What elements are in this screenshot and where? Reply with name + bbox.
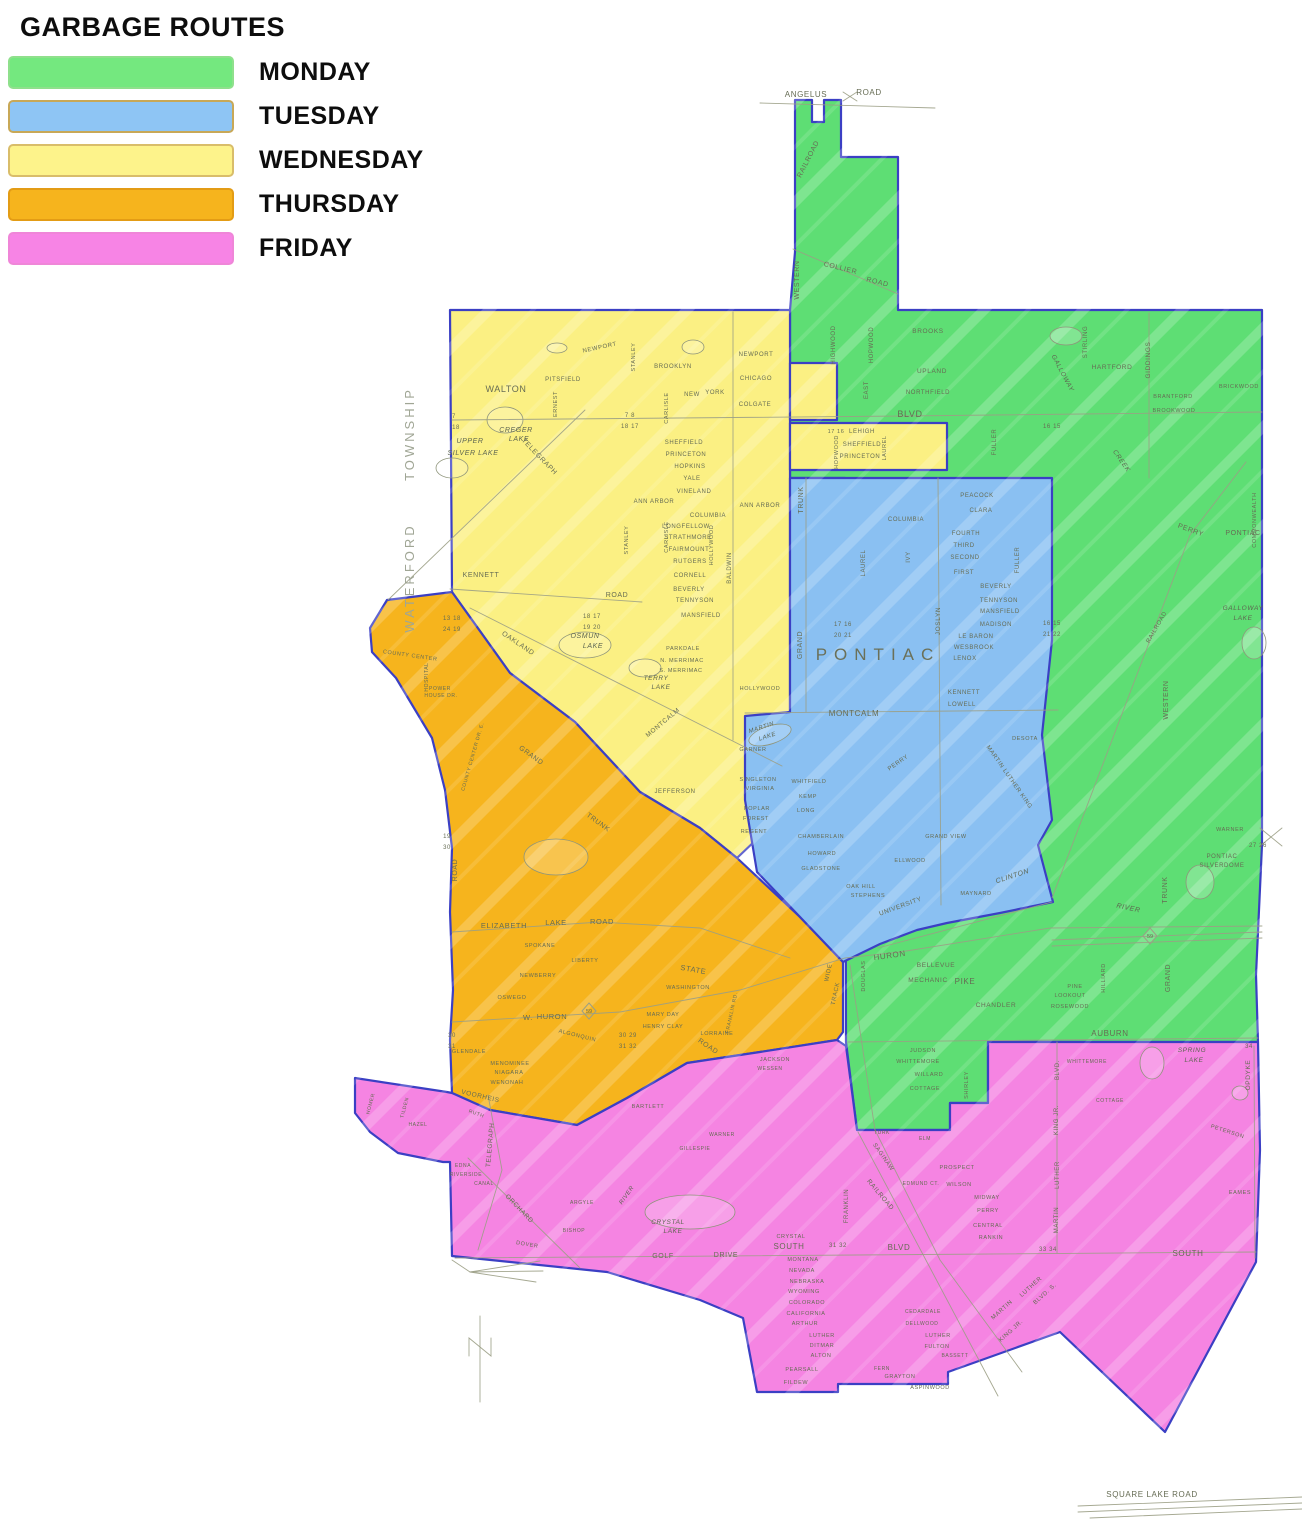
street-label: STIRLING [1083,326,1089,358]
street-label: PITSFIELD [545,377,581,383]
street-label: POPLAR [744,806,770,812]
highway-shield-number: 59 [586,1009,592,1015]
legend-swatch-friday [8,232,234,265]
street-label: ROAD [590,917,614,926]
legend-label-monday: MONDAY [259,58,371,87]
street-label: GILLESPIE [680,1146,711,1152]
road-line [470,1272,536,1282]
street-label: LAKE [545,918,567,927]
lake-label: CREGER [499,427,533,434]
lake-outline [1242,627,1266,659]
legend-label-friday: FRIDAY [259,234,353,263]
highway-shield-number: 59 [1147,934,1153,940]
page-title: GARBAGE ROUTES [20,12,424,43]
street-label: FULLER [992,429,998,456]
street-label: SPOKANE [525,943,556,949]
street-label: COLUMBIA [888,517,924,523]
street-label: PARKDALE [666,646,700,652]
street-label: KEMP [799,794,817,800]
street-label: PRINCETON [840,454,881,460]
street-label: STANLEY [624,526,630,555]
street-label: DRIVE [714,1252,738,1259]
street-label: HOPKINS [674,464,705,470]
street-label: PIKE [955,977,976,986]
legend-label-thursday: THURSDAY [259,190,400,219]
street-label: GRAND VIEW [925,834,967,840]
street-label: KING JR. [1054,1105,1060,1135]
street-label: HOPWOOD [834,435,840,469]
street-label: PROSPECT [939,1165,974,1171]
street-label: 16 15 [1043,424,1061,430]
street-label: STANLEY [631,343,637,372]
street-label: EDNA [455,1163,471,1169]
street-label: 30 29 [619,1033,637,1039]
street-label: CORNELL [674,573,707,579]
street-label: THIRD [953,543,974,549]
lake-label: CRYSTAL [651,1219,684,1226]
street-label: EDMUND CT. [903,1181,940,1187]
street-label: 33 34 [1039,1247,1057,1253]
street-label: WESSEN [757,1066,782,1072]
street-label: OPDYKE [1245,1060,1252,1091]
street-label: JEFFERSON [654,789,695,795]
street-label: 18 17 [583,614,601,620]
street-label: W. [523,1013,533,1022]
street-label: WHITTEMORE [896,1059,940,1065]
lake-outline [1050,327,1082,345]
legend: GARBAGE ROUTES MONDAYTUESDAYWEDNESDAYTHU… [8,8,424,276]
street-label: LAUREL [861,549,867,576]
street-label: 18 17 [621,424,639,430]
street-label: MANSFIELD [980,609,1020,615]
street-label: S. MERRIMAC [659,668,702,674]
street-label: COMMONWEALTH [1252,492,1258,547]
street-label: VINELAND [677,489,712,495]
street-label: 27 26 [1249,843,1267,849]
street-label: WASHINGTON [666,985,710,991]
street-label: OAK HILL [846,884,876,890]
street-label: 17 16 [834,622,852,628]
lake-outline [682,340,704,354]
street-label: WILLARD [915,1072,944,1078]
street-label: VIRGINIA [746,786,775,792]
street-label: GLENDALE [452,1049,486,1055]
street-label: BRANTFORD [1153,394,1193,400]
street-label: SINGLETON [739,777,776,783]
street-label: JACKSON [760,1057,790,1063]
street-label: GARNER [739,747,766,753]
street-label: WATERFORD [402,523,417,632]
street-label: 13 18 [443,616,461,622]
street-label: N. MERRIMAC [660,658,704,664]
street-label: HOWARD [808,851,836,857]
street-label: LUTHER [925,1333,951,1339]
street-label: TOWNSHIP [402,387,417,481]
street-label: LOOKOUT [1054,993,1085,999]
street-label: MARY DAY [647,1012,680,1018]
street-label: 24 19 [443,627,461,633]
street-label: MARTIN [1054,1207,1060,1234]
street-label: 18 [452,425,460,431]
street-label: TRUNK [1162,876,1169,903]
street-label: 21 22 [1043,632,1061,638]
street-label: CALIFORNIA [786,1311,825,1317]
legend-swatch-monday [8,56,234,89]
street-label: FULLER [1015,547,1021,574]
street-label: LIBERTY [571,958,598,964]
street-label: FERN [874,1366,890,1372]
garbage-routes-page: 5959ANGELUSROADWATERFORDTOWNSHIPSQUARE L… [0,0,1302,1536]
street-label: FULTON [924,1344,949,1350]
legend-swatch-thursday [8,188,234,221]
street-label: BROOKLYN [654,364,692,370]
street-label: HILLIARD [1101,963,1107,993]
street-label: FOURTH [952,531,981,537]
street-label: FRANKLIN [844,1189,850,1223]
street-label: HENRY CLAY [643,1024,684,1030]
street-label: TENNYSON [980,598,1018,604]
street-label: RUTGERS [673,559,707,565]
street-label: ARTHUR [792,1321,818,1327]
street-label: GLADSTONE [801,866,840,872]
street-label: NEBRASKA [790,1279,825,1285]
street-label: BROOKS [912,328,943,335]
street-label: PONTIAC [816,645,941,664]
street-label: SHIRLEY [964,1071,970,1099]
street-label: LOWELL [948,702,976,708]
street-label: 16 15 [1043,621,1061,627]
legend-item-tuesday: TUESDAY [8,100,424,133]
legend-items: MONDAYTUESDAYWEDNESDAYTHURSDAYFRIDAY [8,56,424,265]
legend-item-thursday: THURSDAY [8,188,424,221]
street-label: JUDSON [910,1048,936,1054]
lake-label: LAKE [663,1228,682,1235]
street-label: LEHIGH [849,429,875,435]
street-label: COTTAGE [1096,1098,1124,1104]
street-label: FOREST [743,816,769,822]
street-label: COLORADO [789,1300,825,1306]
lake-outline [1186,865,1214,899]
lake-outline [524,839,588,875]
street-label: LONG [797,808,815,814]
street-label: WESBROOK [954,645,994,651]
street-label: NIAGARA [495,1070,524,1076]
street-label: MIDWAY [974,1195,1000,1201]
street-label: REGENT [741,829,768,835]
street-label: WHITFIELD [791,779,826,785]
street-label: DITMAR [810,1343,835,1349]
street-label: ANGELUS [785,90,827,99]
street-label: CEDARDALE [905,1309,941,1315]
legend-label-wednesday: WEDNESDAY [259,146,424,175]
street-label: MECHANIC [908,977,947,984]
street-label: HURON [537,1012,568,1021]
road-line [760,103,935,108]
street-label: CARLISLE [664,392,670,423]
legend-swatch-tuesday [8,100,234,133]
lake-label: UPPER [456,438,483,445]
legend-label-tuesday: TUESDAY [259,102,380,131]
street-label: SILVERDOME [1200,863,1245,869]
street-label: BRICKWOOD [1219,384,1259,390]
lake-outline [1140,1047,1164,1079]
street-label: MONTCALM [829,709,880,718]
street-label: WALTON [486,384,527,394]
street-label: BALDWIN [727,552,733,584]
street-label: NEWPORT [739,352,774,358]
street-label: HOLLYWOOD [740,686,781,692]
street-label: SHEFFIELD [843,442,881,448]
street-label: SECOND [950,555,979,561]
street-label: PONTIAC [1207,854,1238,860]
lake-label: LAKE [1184,1057,1203,1064]
street-label: NORTHFIELD [906,390,950,396]
street-label: KENNETT [463,572,500,579]
street-label: 17 16 [828,429,845,435]
street-label: CRYSTAL [776,1234,805,1240]
street-label: ERNEST [553,391,559,417]
street-label: CANAL [474,1181,494,1187]
street-label: EAMES [1229,1190,1251,1196]
street-label: LUTHER [809,1333,835,1339]
street-label: MADISON [980,622,1012,628]
street-label: ELM [919,1136,931,1142]
street-label: HOUSE DR. [424,693,457,699]
street-label: MONTANA [787,1257,818,1263]
street-label: SOUTH [774,1242,805,1251]
street-label: WENONAH [491,1080,524,1086]
legend-swatch-wednesday [8,144,234,177]
street-label: 20 21 [834,633,852,639]
road-line [470,1261,540,1272]
street-label: SOUTH [1173,1249,1204,1258]
street-label: YALE [683,476,700,482]
street-label: NEWBERRY [520,973,556,979]
street-label: BLVD [897,409,922,419]
street-label: KENNETT [948,690,980,696]
street-label: OSWEGO [498,995,527,1001]
street-label: CHANDLER [976,1002,1017,1009]
street-label: BISHOP [563,1228,586,1234]
street-label: COLUMBIA [690,513,726,519]
street-label: PERRY [977,1208,999,1214]
street-label: TENNYSON [676,598,714,604]
lake-label: OSMUN [570,633,599,640]
street-label: JOSLYN [935,607,942,635]
street-label: LAUREL [882,436,888,461]
street-label: DOUGLAS [861,960,867,991]
street-label: HOLLYWOOD [709,525,715,566]
street-label: ASPINWOOD [910,1385,950,1391]
street-label: BEVERLY [673,587,704,593]
zone-tuesday [745,478,1053,962]
legend-item-wednesday: WEDNESDAY [8,144,424,177]
street-label: SQUARE LAKE ROAD [1106,1490,1197,1499]
street-label: BARTLETT [632,1104,665,1110]
street-label: WARNER [1216,827,1244,833]
lake-label: SPRING [1178,1047,1207,1054]
street-label: FAIRMOUNT [669,547,710,553]
street-label: WESTERN [794,260,801,299]
street-label: CHICAGO [740,376,772,382]
street-label: MANSFIELD [681,613,721,619]
street-label: PEACOCK [960,493,994,499]
street-label: 31 32 [829,1243,847,1249]
street-label: EAST [864,381,870,399]
street-label: FILDEW [784,1380,809,1386]
lake-label: SILVER LAKE [448,450,499,457]
street-label: FIRST [954,570,974,576]
street-label: PRINCETON [666,452,707,458]
street-label: HIGHWOOD [831,325,837,364]
street-label: ANN ARBOR [634,499,675,505]
street-label: ALTON [811,1353,832,1359]
street-label: STRATHMORE [664,535,712,541]
street-label: CARLISLE [664,521,670,552]
street-label: HOPWOOD [869,327,875,364]
street-label: HARTFORD [1092,364,1133,371]
street-label: ROAD [856,88,882,97]
street-label: DELLWOOD [905,1321,938,1327]
street-label: BEVERLY [980,584,1011,590]
street-label: 30 [443,845,451,851]
street-label: HAZEL [408,1122,427,1128]
street-label: TRUNK [798,486,805,513]
street-label: ROAD [606,592,629,599]
zone-wednesday-north-a [790,363,837,420]
street-label: 19 20 [583,625,601,631]
lake-outline [436,458,468,478]
street-label: GRAND [1165,964,1172,992]
street-label: RIVERSIDE [450,1172,482,1178]
street-label: 19 [443,834,451,840]
street-label: COLGATE [739,402,771,408]
street-label: ROSEWOOD [1051,1004,1089,1010]
street-label: POWER [429,686,451,692]
street-label: WESTERN [1163,680,1170,719]
street-label: PEARSALL [785,1367,818,1373]
street-label: 7 8 [625,413,635,419]
street-label: BLVD. [1055,1060,1061,1080]
street-label: WHITTEMORE [1067,1059,1107,1065]
street-label: CHAMBERLAIN [798,834,844,840]
street-label: YORK [705,390,724,396]
street-label: STEPHENS [851,893,885,899]
lake-label: TERRY [644,675,669,682]
street-label: MAYNARD [960,891,991,897]
street-label: CLARA [969,508,992,514]
lake-label: LAKE [1233,615,1252,622]
street-label: GRAYTON [885,1374,916,1380]
lake-label: GALLOWAY [1223,605,1264,612]
street-label: GRAND [797,631,804,659]
street-label: ELIZABETH [481,921,527,930]
lake-outline [547,343,567,353]
street-label: ANN ARBOR [740,503,781,509]
street-label: GIDDINGS [1145,341,1152,378]
street-label: NEVADA [789,1268,815,1274]
legend-item-friday: FRIDAY [8,232,424,265]
road-line [452,1260,470,1272]
street-label: SHEFFIELD [665,440,703,446]
street-label: LE BARON [958,634,993,640]
street-label: 34 [1245,1044,1253,1050]
street-label: 7 [452,414,456,420]
street-label: 31 32 [619,1044,637,1050]
street-label: WILSON [946,1182,971,1188]
street-label: BLVD [888,1243,911,1252]
street-label: ARGYLE [570,1200,594,1206]
street-label: RANKIN [979,1235,1003,1241]
lake-label: LAKE [583,643,603,650]
road-line [470,1271,543,1272]
street-label: CENTRAL [973,1223,1003,1229]
street-label: PINE [1067,984,1082,990]
street-label: MENOMINEE [490,1061,529,1067]
legend-item-monday: MONDAY [8,56,424,89]
street-label: LENOX [953,656,976,662]
street-label: 30 [448,1033,456,1039]
street-label: IVY [906,551,912,562]
street-label: TURK [874,1130,890,1136]
street-label: BROOKWOOD [1153,408,1196,414]
lake-label: LAKE [651,684,670,691]
street-label: WYOMING [788,1289,820,1295]
street-label: ROAD [452,859,459,882]
street-label: GOLF [652,1253,673,1260]
street-label: BASSETT [942,1353,969,1359]
street-label: NEW [684,392,700,398]
street-label: LUTHER [1055,1161,1061,1189]
street-label: UPLAND [917,368,947,375]
street-label: BELLEVUE [917,962,955,969]
street-label: WARNER [709,1132,735,1138]
street-label: DESOTA [1012,736,1038,742]
street-label: 31 [448,1044,456,1050]
street-label: ELLWOOD [894,858,925,864]
street-label: AUBURN [1091,1029,1128,1038]
street-label: COTTAGE [910,1086,940,1092]
